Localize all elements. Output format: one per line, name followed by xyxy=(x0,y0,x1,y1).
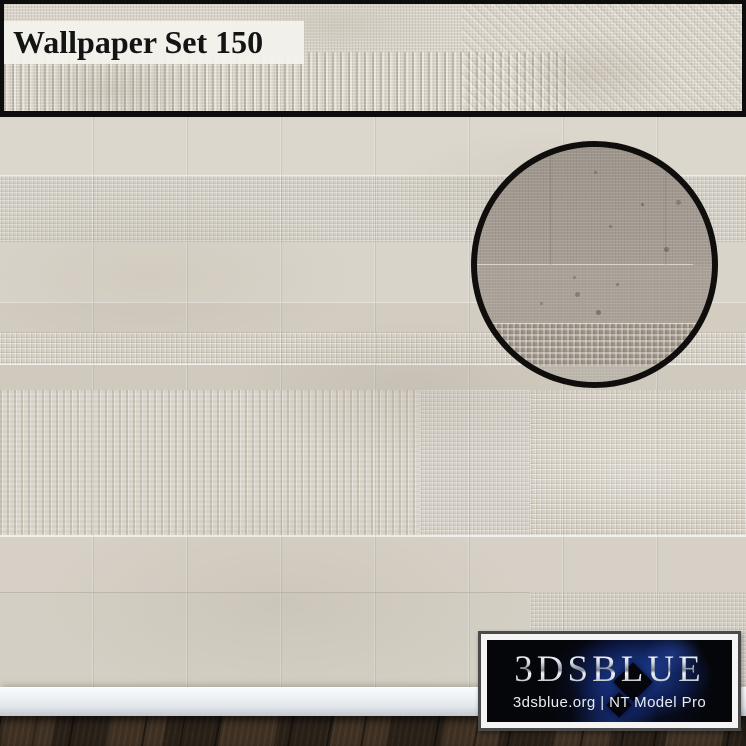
zoom-inset-circle xyxy=(471,141,718,388)
inset-speckles xyxy=(594,171,597,174)
brand-logo-box: 3DSBLUE 3dsblue.org | NT Model Pro xyxy=(478,631,741,731)
product-title-label: Wallpaper Set 150 xyxy=(4,21,304,64)
inset-vertical-seam xyxy=(665,147,666,265)
texture-panel xyxy=(420,390,530,535)
product-preview-scene: Wallpaper Set 150 3DSBLUE 3dsblue.org | … xyxy=(0,0,746,746)
inset-vertical-seam xyxy=(550,147,551,265)
wall-texture xyxy=(0,117,746,687)
brand-tagline: 3dsblue.org | NT Model Pro xyxy=(513,694,706,711)
brand-name: 3DSBLUE xyxy=(514,651,704,688)
inset-mesh-band xyxy=(477,323,712,365)
brand-logo-panel: 3DSBLUE 3dsblue.org | NT Model Pro xyxy=(487,640,732,722)
texture-panel-stipple xyxy=(0,390,420,535)
title-banner: Wallpaper Set 150 xyxy=(0,0,746,117)
texture-panel-mesh-patch xyxy=(530,390,746,535)
inset-bottom-strip xyxy=(477,366,712,382)
product-title: Wallpaper Set 150 xyxy=(13,24,263,61)
inset-lower-band xyxy=(477,265,712,324)
texture-panel xyxy=(0,535,746,592)
inset-horizontal-seam xyxy=(477,263,693,265)
